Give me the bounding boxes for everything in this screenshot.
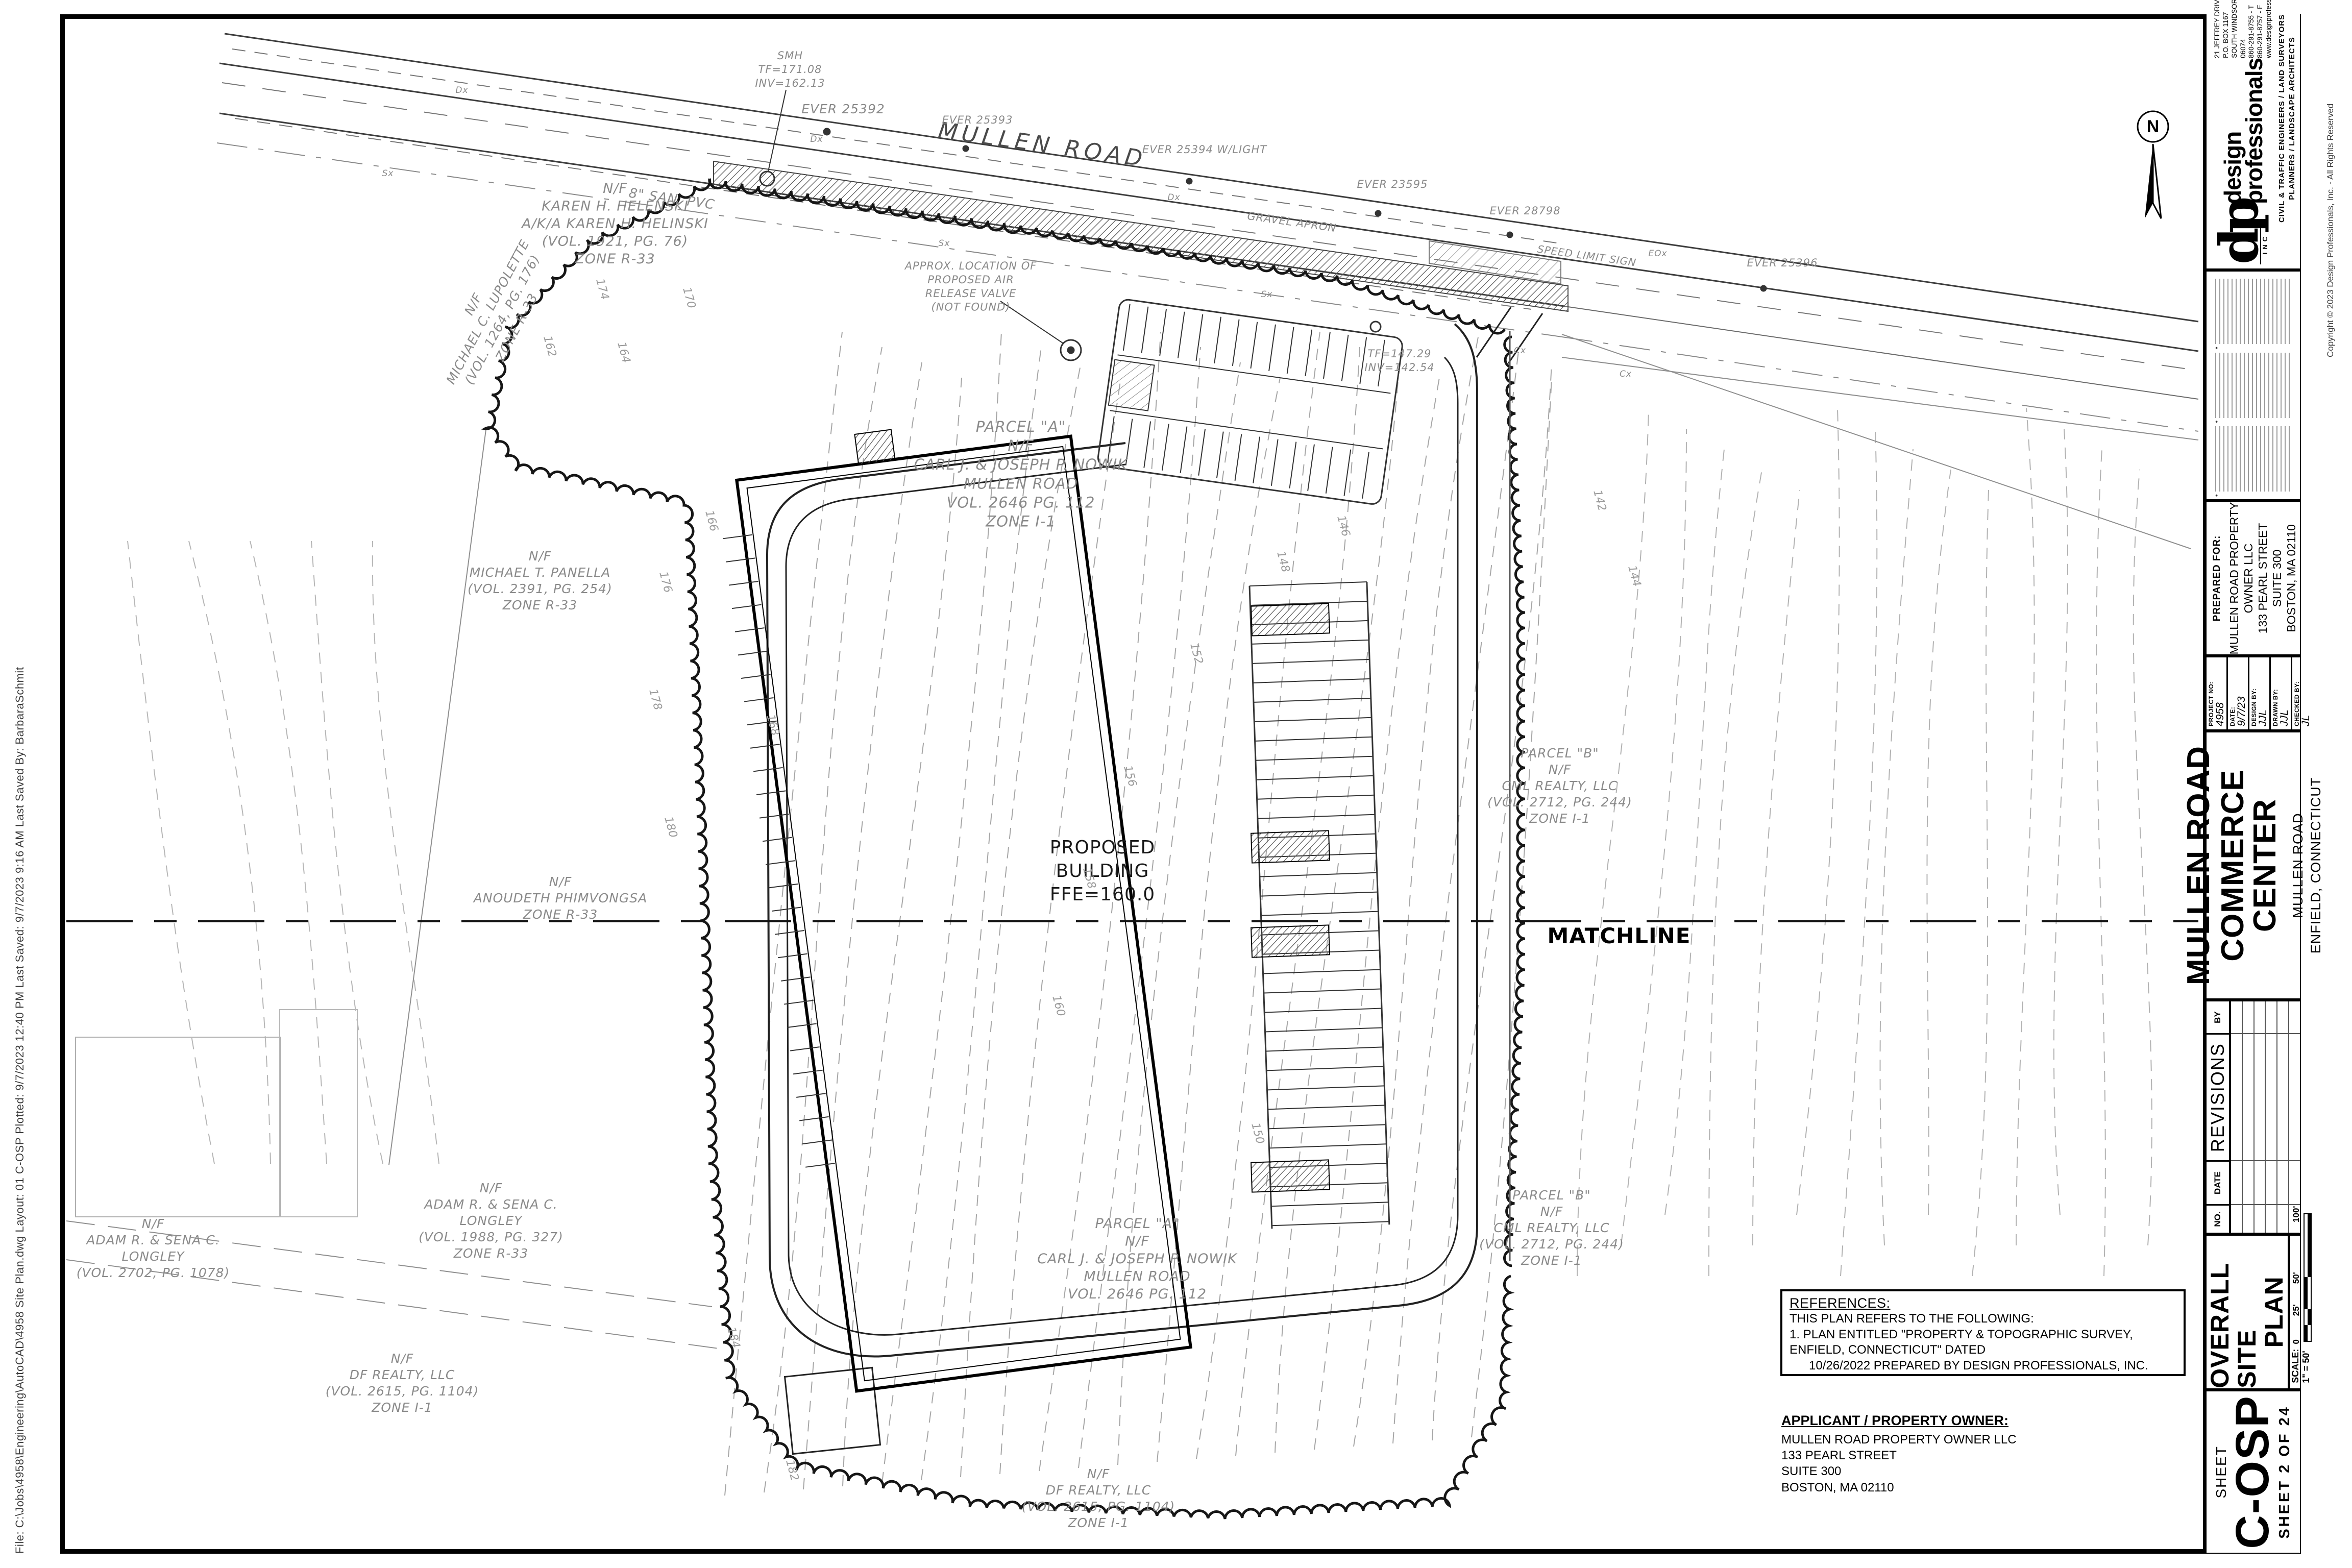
list-item: BOSTON, MA 02110 bbox=[2284, 502, 2298, 655]
list-item: 860-291-8755 - T bbox=[2247, 0, 2256, 58]
list-item: SUITE 300 bbox=[1781, 1463, 2139, 1479]
revision-row bbox=[2231, 1001, 2243, 1233]
list-item: BOSTON, MA 02110 bbox=[1781, 1480, 2139, 1496]
revisions-title: REVISIONS bbox=[2207, 1033, 2229, 1160]
note-paragraph bbox=[2215, 279, 2292, 344]
sheet-number: C-OSP bbox=[2231, 1395, 2275, 1549]
prepared-for-label: PREPARED FOR: bbox=[2212, 535, 2223, 622]
firm-address: 21 JEFFREY DRIVEP.O. BOX 1167SOUTH WINDS… bbox=[2213, 0, 2273, 58]
dp-logo-glyph: dp bbox=[2218, 204, 2260, 264]
scale-tick: 0 bbox=[2291, 1339, 2301, 1344]
references-line: 1. PLAN ENTITLED "PROPERTY & TOPOGRAPHIC… bbox=[1790, 1327, 2176, 1358]
list-item: www.designprofessionalsinc.com bbox=[2265, 0, 2273, 58]
plot-file-info: File: C:\Jobs\4958\Engineering\AutoCAD\4… bbox=[13, 73, 27, 1554]
list-item: MULLEN ROAD PROPERTY OWNER LLC bbox=[1781, 1432, 2139, 1448]
note-paragraph bbox=[2215, 353, 2292, 418]
references-box: REFERENCES: THIS PLAN REFERS TO THE FOLL… bbox=[1780, 1289, 2186, 1376]
revisions-empty-rows bbox=[2231, 1001, 2300, 1233]
applicant-heading: APPLICANT / PROPERTY OWNER: bbox=[1781, 1413, 2139, 1429]
list-item: 133 PEARL STREET bbox=[1781, 1448, 2139, 1463]
revisions-col-by: BY bbox=[2207, 1001, 2229, 1033]
note-paragraph bbox=[2215, 427, 2292, 492]
scale-row: SCALE: 1" = 50' 025'50'100' bbox=[2288, 1236, 2311, 1388]
graphic-scale-bar: 025'50'100' bbox=[2290, 1241, 2311, 1342]
copyright-note: Copyright © 2023 Design Professionals, I… bbox=[2325, 15, 2336, 357]
applicant-lines: MULLEN ROAD PROPERTY OWNER LLC133 PEARL … bbox=[1781, 1432, 2139, 1496]
project-title-block: MULLEN ROAD COMMERCE CENTER MULLEN ROAD … bbox=[2207, 729, 2300, 998]
references-heading: REFERENCES: bbox=[1790, 1295, 2176, 1311]
revisions-block: NO. DATE REVISIONS BY bbox=[2207, 998, 2300, 1233]
titleblock-field: DRAWN BY:JJL bbox=[2271, 657, 2292, 729]
revision-row bbox=[2243, 1001, 2255, 1233]
list-item: 21 JEFFREY DRIVE bbox=[2213, 0, 2222, 58]
revision-row bbox=[2277, 1001, 2289, 1233]
title-block: SHEET C-OSP SHEET 2 OF 24 OVERALL SITE P… bbox=[2203, 14, 2300, 1553]
applicant-block: APPLICANT / PROPERTY OWNER: MULLEN ROAD … bbox=[1781, 1413, 2139, 1496]
sheet-count: SHEET 2 OF 24 bbox=[2276, 1405, 2293, 1539]
project-subtitle-road: MULLEN ROAD bbox=[2290, 813, 2306, 918]
references-line: 10/26/2022 PREPARED BY DESIGN PROFESSION… bbox=[1790, 1358, 2176, 1374]
revision-row bbox=[2289, 1001, 2300, 1233]
revision-row bbox=[2266, 1001, 2277, 1233]
scale-tick: 100' bbox=[2291, 1206, 2301, 1222]
plan-title-line2: PLAN bbox=[2261, 1276, 2288, 1347]
revision-row bbox=[2255, 1001, 2266, 1233]
list-item: MULLEN ROAD PROPERTY bbox=[2227, 502, 2241, 655]
titleblock-fields: PROJECT NO:4958DATE:9/7/23DESIGN BY:JJLD… bbox=[2207, 654, 2300, 729]
list-item: 133 PEARL STREET bbox=[2256, 502, 2270, 655]
list-item: P.O. BOX 1167 bbox=[2222, 0, 2231, 58]
project-title-line2: COMMERCE CENTER bbox=[2217, 732, 2281, 998]
plan-title-line1: OVERALL SITE bbox=[2207, 1236, 2261, 1388]
plan-title-block: OVERALL SITE PLAN SCALE: 1" = 50' 025'50… bbox=[2207, 1233, 2300, 1388]
firm-name-line2: professionals bbox=[2243, 58, 2265, 204]
scale-tick: 25' bbox=[2291, 1304, 2301, 1316]
revisions-col-date: DATE bbox=[2207, 1160, 2229, 1204]
project-subtitle-town: ENFIELD, CONNECTICUT bbox=[2308, 777, 2324, 954]
firm-tagline2: PLANNERS / LANDSCAPE ARCHITECTS bbox=[2287, 0, 2297, 264]
titleblock-field: CHECKED BY:JL bbox=[2292, 657, 2312, 729]
references-line: THIS PLAN REFERS TO THE FOLLOWING: bbox=[1790, 1311, 2176, 1327]
prepared-for-lines: MULLEN ROAD PROPERTYOWNER LLC133 PEARL S… bbox=[2227, 502, 2298, 655]
scale-label: SCALE: bbox=[2290, 1349, 2301, 1383]
scale-tick: 50' bbox=[2291, 1272, 2301, 1284]
fine-print-notes bbox=[2207, 268, 2300, 499]
titleblock-field: DESIGN BY:JJL bbox=[2249, 657, 2271, 729]
titleblock-field: PROJECT NO:4958 bbox=[2207, 657, 2228, 729]
scale-value: 1" = 50' bbox=[2301, 1349, 2312, 1383]
firm-name-line1: design bbox=[2222, 58, 2243, 204]
list-item: SOUTH WINDSOR, CT 06074 bbox=[2231, 0, 2248, 58]
prepared-for-block: PREPARED FOR: MULLEN ROAD PROPERTYOWNER … bbox=[2207, 499, 2300, 655]
list-item: SUITE 300 bbox=[2270, 502, 2284, 655]
sheet-number-block: SHEET C-OSP SHEET 2 OF 24 bbox=[2207, 1388, 2300, 1553]
project-title-line1: MULLEN ROAD bbox=[2183, 746, 2215, 985]
revisions-col-no: NO. bbox=[2207, 1204, 2229, 1233]
firm-logo-block: dp INC design professionals 21 JEFFREY D… bbox=[2207, 14, 2300, 268]
titleblock-field: DATE:9/7/23 bbox=[2228, 657, 2249, 729]
list-item: 860-291-8757 - F bbox=[2256, 0, 2265, 58]
list-item: OWNER LLC bbox=[2241, 502, 2256, 655]
firm-tagline1: CIVIL & TRAFFIC ENGINEERS / LAND SURVEYO… bbox=[2277, 0, 2287, 264]
